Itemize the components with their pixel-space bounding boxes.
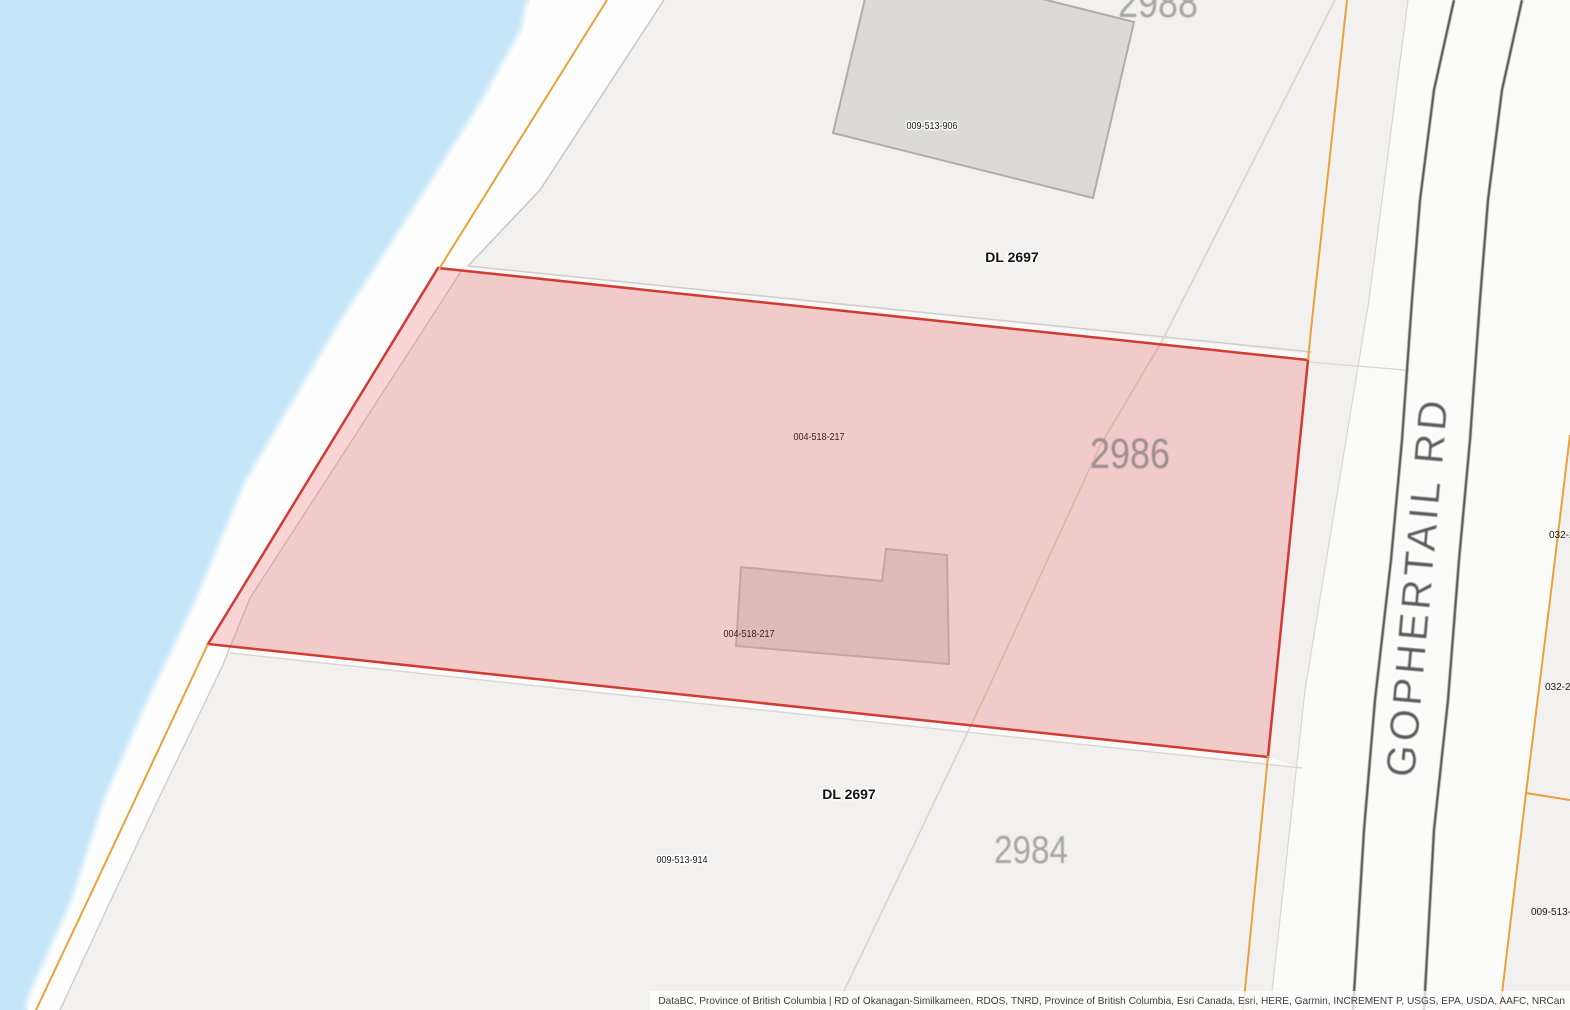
svg-text:DataBC, Province of British Co: DataBC, Province of British Columbia | R…: [658, 996, 1565, 1007]
svg-text:DL 2697: DL 2697: [822, 786, 876, 802]
svg-text:032-2: 032-2: [1549, 530, 1570, 541]
svg-text:2988: 2988: [1118, 0, 1198, 27]
svg-text:032-26: 032-26: [1545, 682, 1570, 693]
svg-text:2986: 2986: [1090, 430, 1170, 478]
svg-text:009-513-9: 009-513-9: [1531, 907, 1570, 918]
svg-text:DL 2697: DL 2697: [985, 249, 1039, 265]
svg-text:004-518-217: 004-518-217: [724, 629, 775, 640]
svg-text:004-518-217: 004-518-217: [794, 432, 845, 443]
svg-text:009-513-914: 009-513-914: [657, 855, 708, 866]
svg-text:009-513-906: 009-513-906: [907, 121, 958, 132]
svg-text:2984: 2984: [994, 829, 1068, 872]
